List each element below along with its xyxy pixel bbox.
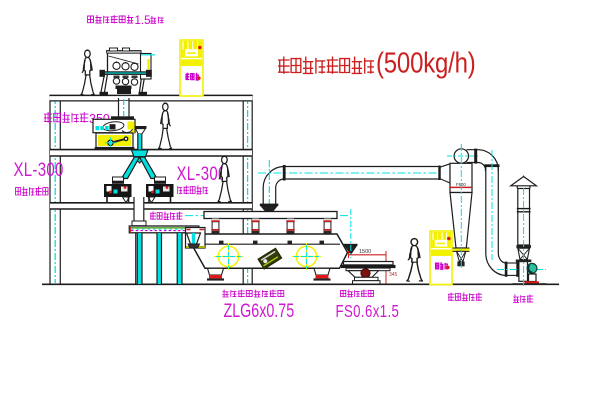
svg-text:1.5: 1.5 bbox=[135, 15, 151, 27]
svg-text:XL-300: XL-300 bbox=[177, 162, 227, 184]
svg-text:1500: 1500 bbox=[359, 249, 371, 255]
svg-text:345: 345 bbox=[389, 272, 398, 278]
svg-text:(500kg/h): (500kg/h) bbox=[376, 47, 476, 79]
svg-text:XL-300: XL-300 bbox=[14, 158, 64, 180]
svg-text:FS0.6x1.5: FS0.6x1.5 bbox=[336, 302, 400, 321]
svg-text:ZLG6x0.75: ZLG6x0.75 bbox=[224, 300, 295, 322]
